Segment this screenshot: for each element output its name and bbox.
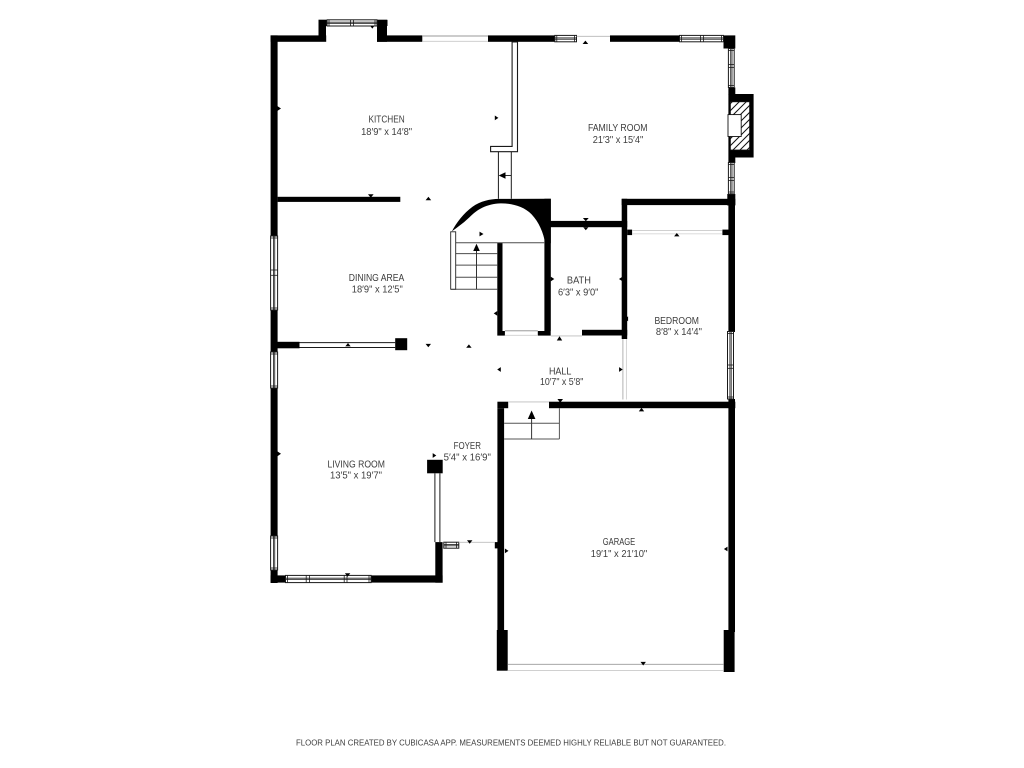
svg-text:5′4" x 16′9": 5′4" x 16′9" (444, 452, 492, 463)
svg-text:18′9" x 14′8": 18′9" x 14′8" (361, 127, 412, 138)
svg-text:FAMILY ROOM: FAMILY ROOM (588, 123, 648, 134)
svg-text:6′3" x 9′0": 6′3" x 9′0" (558, 287, 599, 298)
svg-text:KITCHEN: KITCHEN (369, 115, 405, 126)
svg-text:18′9" x 12′5": 18′9" x 12′5" (352, 284, 403, 295)
svg-text:FLOOR PLAN CREATED BY CUBICASA: FLOOR PLAN CREATED BY CUBICASA APP. MEAS… (296, 738, 726, 748)
svg-text:19′1" x 21′10": 19′1" x 21′10" (591, 549, 648, 560)
svg-text:FOYER: FOYER (454, 441, 481, 452)
svg-text:8′8" x 14′4": 8′8" x 14′4" (656, 327, 702, 338)
svg-text:GARAGE: GARAGE (603, 537, 636, 548)
svg-text:LIVING ROOM: LIVING ROOM (327, 459, 385, 470)
svg-text:10′7" x 5′8": 10′7" x 5′8" (540, 377, 584, 388)
svg-text:21′3" x 15′4": 21′3" x 15′4" (593, 135, 644, 146)
svg-text:BATH: BATH (567, 275, 591, 286)
svg-text:HALL: HALL (549, 367, 572, 378)
svg-text:BEDROOM: BEDROOM (654, 316, 699, 327)
svg-text:13′5" x 19′7": 13′5" x 19′7" (330, 471, 382, 482)
svg-text:DINING AREA: DINING AREA (349, 273, 405, 284)
